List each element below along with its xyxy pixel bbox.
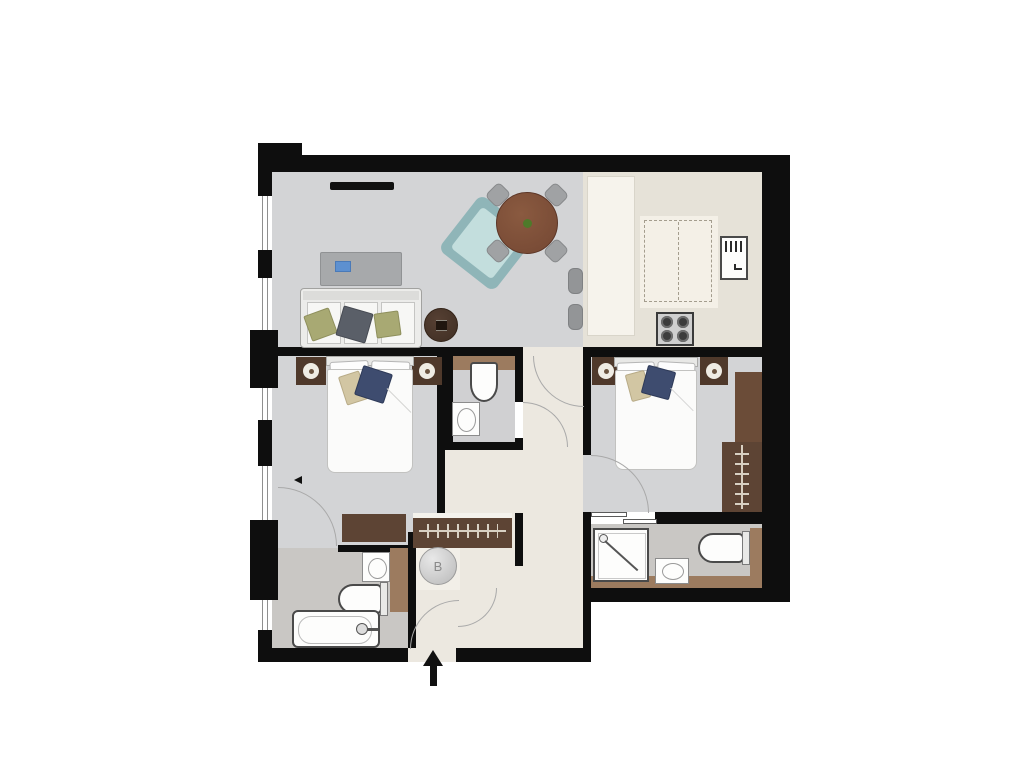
kitchen-island-divider <box>678 222 680 300</box>
wall-left-pier <box>258 630 272 662</box>
window <box>258 466 272 520</box>
fridge-handle <box>734 264 742 270</box>
boiler-circle: B <box>419 547 457 585</box>
wall-left-pier <box>258 250 272 278</box>
nightstand <box>296 357 326 385</box>
ensuite-basin <box>655 558 689 584</box>
lamp-bulb <box>425 369 430 374</box>
hob <box>656 312 694 346</box>
lamp-bulb <box>712 369 717 374</box>
lamp-icon <box>419 363 435 379</box>
entrance-arrow-shaft <box>430 664 437 686</box>
tv <box>330 182 394 190</box>
chest-of-drawers <box>342 514 406 542</box>
sofa <box>300 288 422 348</box>
sofa-back <box>303 291 419 300</box>
basin-bowl <box>662 563 684 580</box>
window <box>258 388 272 420</box>
wardrobe-shelf <box>413 513 512 518</box>
wall-corridor-left-stub <box>515 513 523 566</box>
window <box>258 600 272 630</box>
wall-wc-bottom <box>445 442 523 450</box>
wall-left-pier-wide <box>250 330 278 388</box>
wall-top <box>258 155 790 172</box>
side-table <box>424 308 458 342</box>
wall-corridor-right-lower <box>583 524 591 662</box>
coffee-table <box>320 252 402 286</box>
ensuite-toilet <box>698 533 744 563</box>
wall-bathroom-top-left <box>272 545 278 552</box>
dining-set <box>488 186 566 260</box>
basin-bowl <box>457 408 476 432</box>
door-swing-arrow <box>294 476 302 484</box>
bar-stool <box>568 268 583 294</box>
boiler-label: B <box>434 559 443 574</box>
bath-tap-spout <box>367 628 378 631</box>
bathroom-basin <box>362 552 390 582</box>
wc-basin <box>452 402 480 436</box>
fridge-vents <box>725 241 743 252</box>
bar-stool <box>568 304 583 330</box>
wall-hall-bottom <box>456 648 590 662</box>
wall-left-pier <box>258 172 272 196</box>
wall-bottom-left <box>258 648 408 662</box>
window <box>258 196 272 250</box>
fridge <box>720 236 748 280</box>
lamp-bulb <box>604 369 609 374</box>
wall-kitchen-bedroom2 <box>583 347 762 357</box>
rail-hangers <box>427 524 498 538</box>
shower <box>593 528 649 582</box>
wall-bedroom2-left-stub <box>583 512 591 524</box>
sofa-cushion-olive <box>373 310 401 338</box>
wall-left-pier-wide <box>250 520 278 600</box>
wardrobe-unit <box>735 372 762 442</box>
wall-bottom-right <box>583 588 790 602</box>
sliding-door-leaf <box>623 519 657 524</box>
kitchen-island <box>640 216 718 308</box>
lamp-icon <box>706 363 722 379</box>
basin-bowl <box>368 558 387 579</box>
bed-1 <box>326 356 414 474</box>
wardrobe-rail <box>413 513 512 548</box>
wall-wc-right-upper <box>515 347 523 402</box>
nightstand <box>700 357 728 385</box>
bathroom-vanity <box>390 548 408 612</box>
bed-2 <box>614 357 698 472</box>
nightstand <box>412 357 442 385</box>
hob-burner <box>661 330 673 342</box>
kitchen-counter <box>587 176 635 336</box>
lamp-bulb <box>309 369 314 374</box>
wall-bedroom1-top <box>272 347 445 356</box>
ensuite-vanity-right <box>750 528 762 588</box>
wall-wc-top <box>445 347 523 356</box>
ensuite-toilet-cistern <box>742 531 750 565</box>
rail-hangers <box>735 449 749 505</box>
bathroom-toilet-cistern <box>380 582 388 616</box>
window <box>258 278 272 330</box>
lamp-icon <box>598 363 614 379</box>
entrance-arrow-icon <box>423 650 443 688</box>
wardrobe-rail-vertical <box>722 442 762 512</box>
lamp-icon <box>303 363 319 379</box>
wall-left-pier <box>258 420 272 466</box>
wall-bedroom2-left-upper <box>583 357 591 455</box>
coffee-table-item <box>335 261 351 272</box>
floor-plan: B <box>0 0 1020 782</box>
hob-burner <box>661 316 673 328</box>
table-plant <box>523 219 532 228</box>
wc-toilet <box>470 362 498 402</box>
side-table-tray <box>436 320 447 331</box>
hob-burner <box>677 316 689 328</box>
wall-right <box>762 172 790 602</box>
bathtub <box>292 610 380 648</box>
wall-bedroom2-bottom <box>655 512 762 524</box>
hob-burner <box>677 330 689 342</box>
